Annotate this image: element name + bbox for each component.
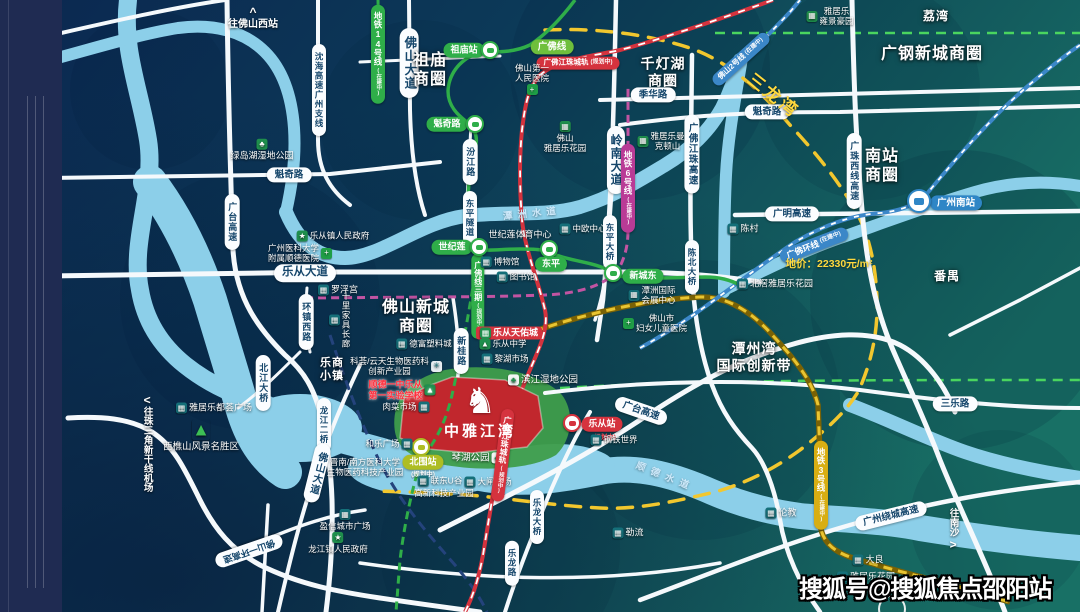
poi-meat-market-icon: ▦: [419, 402, 430, 413]
dir-foshan-west-station: ^往佛山西站: [228, 7, 278, 31]
station-dongping-label: 东平: [542, 259, 560, 270]
pill-xingui-road-label: 新桂路: [456, 336, 467, 366]
station-beiwei-icon: [412, 438, 430, 456]
pill-guangzhu-west-expwy-label: 广珠西线高速: [849, 141, 860, 201]
pill-lecong-avenue: 乐从大道: [274, 264, 336, 282]
poi-gzmu-shunde-hospital: 广州医科大学 附属顺德医院+: [268, 243, 332, 263]
area-liwan: 荔湾: [923, 9, 949, 23]
dir-nansha-icon: >: [948, 539, 959, 550]
poi-defu-plastic-city-label: 德富塑料城: [409, 339, 452, 349]
pill-lecong-avenue-label: 乐从大道: [282, 266, 328, 280]
pill-metro-line14-label: 地铁14号线: [373, 12, 383, 66]
area-liwan-label: 荔湾: [923, 9, 949, 23]
poi-longjiang-government-icon: ★: [332, 532, 343, 543]
area-tanzhouwan-innovation: 潭州湾 国际创新带: [717, 340, 792, 373]
pill-kuiqi-road-w: 魁奇路: [267, 167, 312, 182]
poi-steel-world-label: 钢铁世界: [603, 435, 637, 445]
poi-yingxin-city-plaza-icon: ▦: [339, 509, 350, 520]
station-shijilian: 世纪莲: [431, 240, 472, 255]
area-nanzhan: 南站 商圈: [865, 148, 899, 186]
watermark: 搜狐号@搜狐焦点邵阳站: [799, 569, 1051, 604]
tag-lecong-tianyou-city-label: 乐从天佑城: [493, 328, 538, 339]
area-zumiao: 祖庙 商圈: [413, 52, 447, 90]
poi-xiqiao-mountain-icon: ▲: [192, 419, 210, 440]
area-panyu-label: 番禺: [934, 269, 960, 283]
poi-foshan-first-hospital-label: 佛山第一 人民医院: [515, 63, 549, 83]
station-zumiao-icon: [481, 41, 499, 59]
poi-leliu-label: 勒流: [625, 528, 643, 539]
area-foshan-newtown-label: 佛山新城 商圈: [382, 299, 450, 337]
station-kuiqi-road: 魁奇路: [426, 117, 467, 132]
station-guangzhou-south: 广州南站: [930, 195, 982, 210]
pill-sanle-road: 三乐路: [933, 396, 978, 411]
area-zumiao-label: 祖庙 商圈: [413, 52, 447, 90]
text-land-price-label: 地价：22330元/m²: [786, 258, 873, 270]
pill-guangfo-jiangzhu-expwy-label: 广佛江珠高速: [686, 123, 697, 186]
station-xinchengdong-icon: [604, 264, 622, 282]
poi-foshan-first-hospital: 佛山第一 人民医院+: [515, 63, 549, 95]
poi-shunde-no1-school-label: 顺德一中乐从 第一实验学校: [368, 379, 422, 400]
poi-meat-market: 肉菜市场▦: [382, 402, 429, 413]
station-guangzhou-south-label: 广州南站: [937, 197, 975, 208]
pill-guangfo-jiangzhu-rail-v-sub: (规划中): [495, 465, 505, 494]
pill-guangtai-expwy-v-label: 广台高速: [227, 202, 238, 242]
poi-hele-plaza-label: 和乐广场: [365, 439, 399, 449]
pill-guangming-expwy-label: 广明高速: [773, 208, 811, 219]
pill-guangfo-line: 广佛线: [531, 39, 574, 54]
location-map: ^往佛山西站荔湾▦雅居乐 雍景豪园地铁14号线(在建中)佛山大道祖庙 商圈祖庙站…: [0, 0, 1080, 612]
poi-museum-label: 博物馆: [494, 257, 520, 267]
station-kuiqi-road-label: 魁奇路: [433, 119, 460, 130]
poi-hele-plaza: 和乐广场▦: [365, 439, 412, 450]
poi-agile-manhattan-label: 雅居乐曼 克顿山: [650, 131, 684, 151]
dir-pearl-delta-airport-label: 往珠三角新干线机场: [141, 407, 152, 493]
poi-xiqiao-mountain: ▲西樵山风景名胜区: [163, 419, 239, 452]
area-qiandenghu-label: 千灯湖 商圈: [641, 55, 686, 88]
poi-lunjiao-icon: ▦: [765, 508, 776, 519]
poi-daliang-label: 大良: [865, 555, 883, 566]
dir-foshan-west-station-label: 往佛山西站: [228, 19, 278, 31]
poi-liandong-u-valley: ▦联东U谷: [418, 476, 463, 487]
poi-foshan-agile-garden-icon: ▦: [559, 121, 570, 132]
poi-chencun-label: 陈村: [740, 224, 758, 235]
poi-agile-manhattan-icon: ▦: [637, 136, 648, 147]
poi-sino-euro-center-icon: ▦: [559, 224, 570, 235]
poi-shili-furniture: 十里家具长廊▦: [329, 292, 351, 349]
pill-guangfo-jiangzhu-rail-sub: (规划中): [591, 59, 613, 66]
pill-foshan-line2-label: 佛山2号线: [716, 52, 747, 81]
poi-agile-duhui-plaza-label: 雅居乐都荟广场: [189, 403, 252, 414]
pill-metro-line3-label: 地铁3号线: [816, 448, 826, 492]
pill-guangfo-line-label: 广佛线: [538, 41, 567, 52]
poi-steel-world: ▦钢铁世界: [590, 435, 637, 446]
poi-library-label: 图书馆: [510, 272, 536, 282]
pill-foshan-ring-expwy-label: 佛山一环高速: [222, 537, 277, 565]
poi-museum-icon: ▦: [481, 257, 492, 268]
pill-shenhai-expwy-label: 沈海高速广州支线: [314, 52, 324, 128]
pill-guangzhou-ring-expwy-label: 广州绕城高速: [862, 504, 920, 529]
pill-sanle-road-label: 三乐路: [941, 398, 970, 409]
area-foshan-newtown: 佛山新城 商圈: [382, 299, 450, 337]
poi-lihu-market-icon: ▦: [481, 354, 492, 365]
station-xinchengdong: 新城东: [622, 269, 663, 284]
text-land-price: 地价：22330元/m²: [786, 258, 873, 270]
pill-guangfo-jiangzhu-rail-label: 广佛江珠城轨: [544, 59, 589, 68]
poi-tanzhou-expo-icon: ▦: [628, 290, 639, 301]
poi-hele-plaza-icon: ▦: [402, 439, 413, 450]
poi-tanzhou-expo: ▦潭洲国际 会展中心: [628, 285, 675, 305]
area-panyu: 番禺: [934, 269, 960, 283]
station-dongping: 东平: [535, 257, 567, 272]
pill-chenbei-bridge-label: 陈北大桥: [687, 248, 697, 286]
poi-dazha-market-icon: ▦: [464, 477, 475, 488]
poi-yajule-yongjing-icon: ▦: [806, 11, 817, 22]
poi-foshan-first-hospital-icon: +: [526, 84, 537, 95]
pill-lelong-road-label: 乐龙路: [507, 549, 517, 578]
pill-chenbei-bridge: 陈北大桥: [685, 240, 699, 294]
poi-tanzhou-expo-label: 潭洲国际 会展中心: [641, 285, 675, 305]
pill-metro-line14: 地铁14号线(在建中): [371, 5, 385, 104]
poi-sino-euro-center: ▦中欧中心: [559, 224, 606, 235]
poi-qinhu-park-label: 琴湖公园: [451, 452, 489, 463]
poi-sino-euro-center-label: 中欧中心: [572, 224, 606, 234]
map-labels: ^往佛山西站荔湾▦雅居乐 雍景豪园地铁14号线(在建中)佛山大道祖庙 商圈祖庙站…: [0, 0, 1080, 612]
pill-lelong-bridge: 乐龙大桥: [530, 490, 544, 544]
poi-foshan-agile-garden: ▦佛山 雅居乐花园: [544, 121, 587, 153]
poi-hightech-park: 高新科技产业园: [414, 488, 474, 498]
area-leshang-town: 乐商 小镇: [320, 357, 344, 383]
poi-leliu-icon: ▦: [612, 528, 623, 539]
poi-leliu: ▦勒流: [612, 528, 643, 539]
poi-defu-plastic-city-icon: ▦: [396, 339, 407, 350]
poi-longjiang-government: ★龙江镇人民政府: [308, 532, 368, 554]
station-lecong-icon: [563, 414, 581, 432]
dir-foshan-west-station-icon: ^: [248, 7, 259, 18]
station-shijilian-label: 世纪莲: [438, 242, 465, 253]
pill-kuiqi-road-w-label: 魁奇路: [275, 169, 304, 180]
river-tanzhou-label: 潭洲水道: [503, 205, 562, 222]
poi-louvre-icon: ▦: [318, 285, 329, 296]
dir-pearl-delta-airport: <往珠三角新干线机场: [141, 394, 152, 493]
poi-lecong-middle-school-label: 乐从中学: [492, 339, 526, 349]
pill-huanzhen-west-road-label: 环镇西路: [301, 302, 312, 342]
pill-metro-line6-sub: (在建中): [625, 197, 631, 226]
poi-beijiao-agile: ▦北滘雅居乐花园: [737, 279, 813, 290]
poi-binjiang-wetland-park-label: 滨江湿地公园: [521, 374, 578, 385]
poi-daliang-icon: ▦: [852, 555, 863, 566]
poi-yajule-yongjing-label: 雅居乐 雍景豪园: [819, 6, 853, 26]
poi-liandong-u-valley-label: 联东U谷: [431, 476, 463, 486]
poi-lihu-market: ▦黎湖市场: [481, 354, 528, 365]
area-guanggang-newtown-label: 广钢新城商圈: [881, 46, 983, 65]
pill-beijiang-bridge: 北江大桥: [256, 355, 271, 411]
pill-guangtai-expwy-d-label: 广台高速: [621, 400, 661, 423]
station-beiwei-label: 北围站: [409, 457, 436, 468]
pill-lelong-bridge-label: 乐龙大桥: [532, 498, 542, 536]
tag-lecong-tianyou-city-icon: ▦: [480, 328, 491, 339]
pill-metro-line6: 地铁6号线(在建中): [621, 144, 635, 233]
pill-metro-line6-label: 地铁6号线: [623, 151, 633, 195]
poi-lihu-market-label: 黎湖市场: [494, 354, 528, 364]
poi-chencun-icon: ▦: [727, 224, 738, 235]
pill-guangfo-jiangzhu-expwy: 广佛江珠高速: [684, 115, 699, 194]
river-shunde-label: 顺德水道: [634, 460, 696, 494]
poi-women-children-hospital: +佛山市 妇女儿童医院: [623, 313, 687, 333]
poi-shunde-no1-school-icon: ▲: [425, 385, 436, 396]
pill-shenhai-expwy: 沈海高速广州支线: [312, 44, 326, 136]
poi-yajule-yongjing: ▦雅居乐 雍景豪园: [806, 6, 853, 26]
poi-daliang: ▦大良: [852, 555, 883, 566]
poi-kehui-biopharma-park-label: 科荟/云天生物医药科 创新产业园: [350, 356, 429, 376]
pill-metro-line14-sub: (在建中): [375, 68, 381, 97]
pill-dongping-bridge-label: 东平大桥: [605, 223, 615, 261]
poi-women-children-hospital-icon: +: [623, 318, 634, 329]
poi-agile-duhui-plaza: ▦雅居乐都荟广场: [176, 403, 252, 414]
station-zumiao: 祖庙站: [443, 43, 484, 58]
poi-agile-manhattan: ▦雅居乐曼 克顿山: [637, 131, 684, 151]
property-marker: ♞ 中雅江湾: [444, 383, 516, 441]
station-zumiao-label: 祖庙站: [450, 45, 477, 56]
pill-dongping-bridge: 东平大桥: [603, 215, 617, 269]
poi-yingxin-city-plaza-label: 盈信城市广场: [319, 521, 370, 531]
station-guangzhou-south-icon: [907, 189, 931, 213]
pill-foshan-avenue-s-label: 佛山大道: [306, 450, 328, 496]
pill-guangzhu-west-expwy: 广珠西线高速: [847, 133, 862, 209]
station-lecong: 乐从站: [581, 417, 622, 432]
poi-shijilian-sports: 世纪莲体育中心: [488, 230, 551, 241]
poi-shijilian-sports-label: 世纪莲体育中心: [488, 230, 551, 241]
poi-museum: ▦博物馆: [481, 257, 520, 268]
pill-metro-line3: 地铁3号线(在建中): [814, 441, 828, 530]
dir-nansha: 往南沙>: [947, 508, 958, 550]
poi-steel-world-icon: ▦: [590, 435, 601, 446]
pill-foshan-line2-sub: (在建中): [744, 37, 765, 57]
poi-liandong-u-valley-icon: ▦: [418, 476, 429, 487]
poi-lecong-government-label: 乐从镇人民政府: [310, 231, 370, 241]
pill-jihua-road: 季华路: [631, 87, 676, 102]
poi-southern-medical-park-label: 晋南/南方医科大学 生物医药科技产业园: [327, 457, 404, 477]
station-beiwei: 北围站: [402, 455, 443, 470]
area-qiandenghu: 千灯湖 商圈: [641, 55, 686, 88]
poi-yingxin-city-plaza: ▦盈信城市广场: [319, 509, 370, 531]
poi-xiqiao-mountain-label: 西樵山风景名胜区: [163, 442, 239, 453]
poi-gzmu-shunde-hospital-label: 广州医科大学 附属顺德医院: [268, 243, 319, 263]
poi-longjiang-government-label: 龙江镇人民政府: [308, 544, 368, 554]
poi-meat-market-label: 肉菜市场: [382, 402, 416, 412]
poi-hightech-park-label: 高新科技产业园: [414, 488, 474, 498]
pill-fenjiang-road-label: 汾江路: [465, 147, 476, 177]
poi-kehui-biopharma-park-icon: ✳: [431, 361, 442, 372]
left-disclaimer-panel: [0, 0, 62, 612]
poi-lunjiao-label: 伦教: [778, 508, 796, 519]
knight-horse-logo-icon: ♞: [464, 383, 496, 419]
poi-southern-medical-park: 晋南/南方医科大学 生物医药科技产业园: [327, 457, 404, 477]
station-lecong-label: 乐从站: [588, 419, 615, 430]
poi-kehui-biopharma-park: 科荟/云天生物医药科 创新产业园✳: [350, 356, 442, 376]
pill-xingui-road: 新桂路: [454, 328, 469, 374]
station-kuiqi-road-icon: [466, 115, 484, 133]
river-tanzhou: 潭洲水道: [503, 205, 562, 222]
poi-shili-furniture-label: 十里家具长廊: [341, 292, 351, 349]
poi-shunde-no1-school: 顺德一中乐从 第一实验学校▲: [368, 379, 435, 400]
area-tanzhouwan-innovation-label: 潭州湾 国际创新带: [717, 340, 792, 373]
poi-agile-duhui-plaza-icon: ▦: [176, 403, 187, 414]
pill-guangtai-expwy-v: 广台高速: [225, 194, 240, 250]
poi-library-icon: ▦: [497, 272, 508, 283]
poi-gzmu-shunde-hospital-icon: +: [321, 248, 332, 259]
area-nanzhan-label: 南站 商圈: [865, 148, 899, 186]
station-shijilian-icon: [470, 238, 488, 256]
poi-defu-plastic-city: ▦德富塑料城: [396, 339, 452, 350]
dir-pearl-delta-airport-icon: <: [142, 394, 153, 405]
poi-library: ▦图书馆: [497, 272, 536, 283]
pill-dongping-tunnel-label: 东平隧道: [465, 199, 475, 237]
pill-lelong-road: 乐龙路: [505, 541, 519, 586]
area-leshang-town-label: 乐商 小镇: [320, 357, 344, 383]
poi-lecong-government: ★乐从镇人民政府: [297, 231, 370, 242]
poi-women-children-hospital-label: 佛山市 妇女儿童医院: [636, 313, 687, 333]
dir-nansha-label: 往南沙: [947, 508, 958, 537]
pill-jihua-road-label: 季华路: [639, 89, 668, 100]
poi-shili-furniture-icon: ▦: [329, 315, 340, 326]
station-dongping-icon: [540, 240, 558, 258]
pill-beijiang-bridge-label: 北江大桥: [258, 363, 269, 403]
poi-chencun: ▦陈村: [727, 224, 758, 235]
river-shunde: 顺德水道: [634, 460, 696, 494]
pill-dongping-tunnel: 东平隧道: [463, 191, 477, 245]
poi-lvdaohu-wetland-icon: ♣: [256, 139, 267, 150]
poi-lecong-middle-school-icon: ▲: [479, 339, 490, 350]
poi-foshan-agile-garden-label: 佛山 雅居乐花园: [544, 133, 587, 153]
pill-guangzhou-ring-expwy: 广州绕城高速: [854, 500, 929, 532]
pill-foshan-ring-expwy: 佛山一环高速: [214, 533, 285, 570]
poi-binjiang-wetland-park: ♣滨江湿地公园: [508, 374, 578, 385]
poi-lvdaohu-wetland-label: 绿岛湖湿地公园: [230, 151, 293, 162]
area-guanggang-newtown: 广钢新城商圈: [881, 46, 983, 65]
poi-lvdaohu-wetland: ♣绿岛湖湿地公园: [230, 139, 293, 162]
pill-metro-line3-sub: (在建中): [818, 494, 824, 523]
poi-beijiao-agile-icon: ▦: [737, 279, 748, 290]
poi-beijiao-agile-label: 北滘雅居乐花园: [750, 279, 813, 290]
pill-huanzhen-west-road: 环镇西路: [299, 294, 314, 350]
pill-guangming-expwy: 广明高速: [765, 206, 819, 221]
pill-guangfo-ring-sub: (在建中): [819, 231, 842, 245]
poi-lunjiao: ▦伦教: [765, 508, 796, 519]
pill-longjiang-2nd-bridge-label: 龙江二桥: [319, 406, 329, 444]
poi-lecong-middle-school: ▲乐从中学: [479, 339, 526, 350]
poi-lecong-government-icon: ★: [297, 231, 308, 242]
property-name: 中雅江湾: [444, 420, 516, 441]
station-xinchengdong-label: 新城东: [629, 271, 656, 282]
pill-fenjiang-road: 汾江路: [463, 139, 478, 185]
